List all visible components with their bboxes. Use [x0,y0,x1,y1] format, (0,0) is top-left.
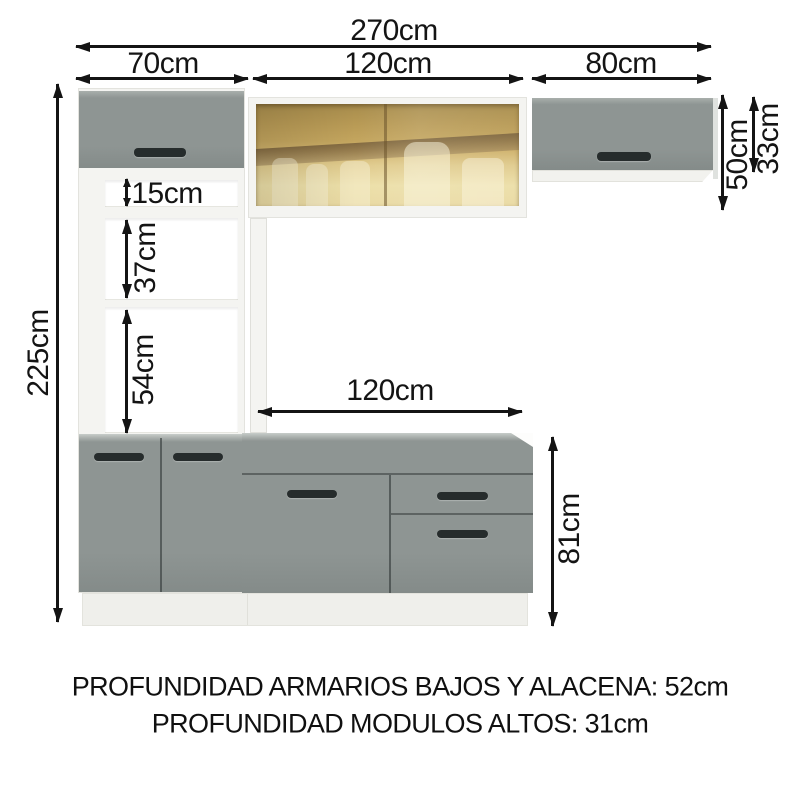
drawer-handle-bottom [437,530,488,538]
door-drawer-seam [389,475,391,593]
base-door-handle-left [94,453,144,461]
tall-cabinet-base-doors [79,434,244,592]
base-door-seam [160,438,162,592]
glass-door-divider [384,104,387,206]
right-cabinet-flap-door [532,98,713,170]
tall-cabinet-door-handle [134,148,186,157]
dim-right-width-label: 80cm [585,47,656,81]
dim-tall-width-label: 70cm [127,47,198,81]
dim-counter-span-label: 120cm [346,374,434,408]
glass-sheen [256,104,519,206]
dim-niche2-label: 37cm [129,222,163,293]
center-base-cabinet [242,433,533,593]
dim-total-width-label: 270cm [350,14,438,48]
countertop-front-seam [242,473,533,475]
dim-right-height-label: 50cm [721,119,755,190]
dim-niche1-label: 15cm [131,177,202,211]
dim-niche1-line [125,179,128,206]
dim-total-height-line [56,84,59,622]
right-cabinet-bottom-panel [532,170,713,182]
tall-cabinet-top-door [79,91,244,168]
center-door-handle [287,490,337,498]
base-door-handle-right [173,453,223,461]
kitchen-dimension-diagram: 270cm 70cm 120cm 80cm 225cm 15cm 37cm 54… [0,0,800,800]
right-cabinet-handle [597,152,651,161]
plinth [82,593,528,626]
dim-right-door-height-label: 33cm [752,103,786,174]
right-wall-cabinet [532,95,717,182]
countertop-corner-bevel [511,433,533,447]
dim-niche3-label: 54cm [127,334,161,405]
tall-cabinet [78,88,245,593]
dim-base-height-label: 81cm [553,493,587,564]
dim-niche2-line [125,220,128,298]
glass-wall-cabinet [248,97,527,218]
dim-total-height-label: 225cm [22,309,56,397]
support-post [250,218,267,433]
drawer-handle-top [437,492,488,500]
depth-note-upper: PROFUNDIDAD MODULOS ALTOS: 31cm [152,709,649,740]
depth-note-base: PROFUNDIDAD ARMARIOS BAJOS Y ALACENA: 52… [72,672,729,703]
plinth-seam [247,594,248,625]
glass-doors [256,104,519,206]
dim-center-width-label: 120cm [344,47,432,81]
dim-counter-span-line [258,410,522,413]
right-cabinet-side-panel [713,98,718,179]
drawer-divider-seam [391,513,533,515]
